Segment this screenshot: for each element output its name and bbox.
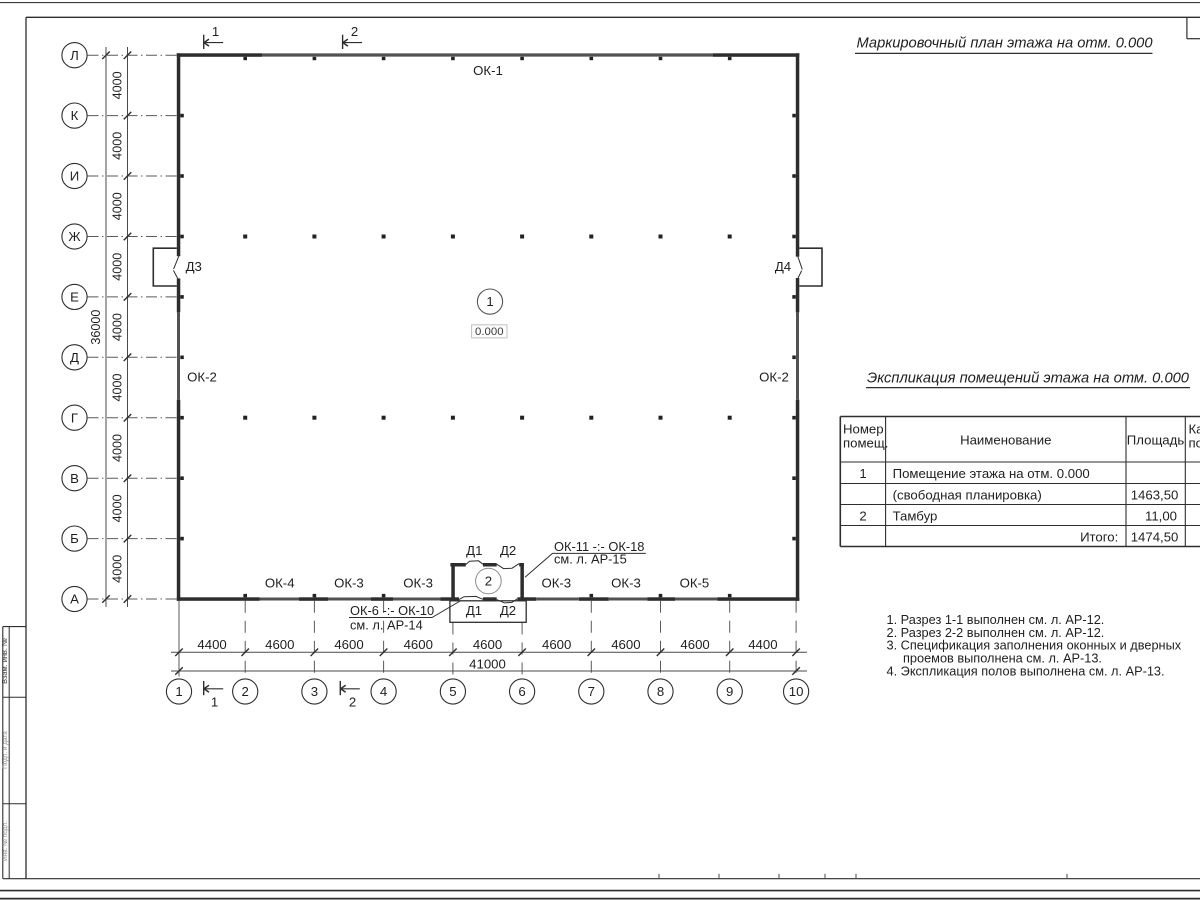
svg-text:4600: 4600 [611, 637, 640, 652]
svg-text:Ка: Ка [1189, 421, 1200, 436]
svg-text:Подп. и дата: Подп. и дата [2, 731, 9, 769]
svg-text:Номер: Номер [843, 421, 884, 436]
svg-text:Инв. № подл.: Инв. № подл. [2, 821, 9, 861]
svg-text:8: 8 [657, 684, 664, 699]
svg-text:Тамбур: Тамбур [893, 509, 938, 524]
svg-text:4600: 4600 [680, 637, 709, 652]
svg-text:Экспликация помещений этажа на: Экспликация помещений этажа на отм. 0.00… [867, 371, 1189, 387]
svg-text:2: 2 [242, 684, 249, 699]
svg-text:3: 3 [311, 684, 318, 699]
svg-text:4600: 4600 [542, 637, 571, 652]
svg-text:4: 4 [380, 684, 387, 699]
svg-text:ОК-3: ОК-3 [334, 576, 364, 591]
svg-text:41000: 41000 [469, 656, 506, 671]
svg-text:по: по [1189, 435, 1200, 450]
svg-text:Наименование: Наименование [960, 433, 1051, 448]
svg-text:7: 7 [588, 684, 595, 699]
svg-text:Д1: Д1 [466, 543, 482, 558]
svg-text:Д2: Д2 [500, 603, 516, 618]
svg-text:Д3: Д3 [186, 259, 202, 274]
svg-text:Г: Г [71, 410, 78, 425]
svg-text:Д: Д [70, 350, 79, 365]
svg-text:4600: 4600 [404, 637, 433, 652]
svg-text:1: 1 [212, 24, 219, 39]
svg-text:Е: Е [70, 290, 79, 305]
svg-text:4000: 4000 [110, 253, 124, 281]
svg-text:А: А [70, 592, 79, 607]
svg-text:4000: 4000 [110, 494, 124, 522]
svg-text:1463,50: 1463,50 [1131, 488, 1179, 503]
svg-text:ОК-5: ОК-5 [680, 576, 710, 591]
svg-text:4400: 4400 [748, 637, 777, 652]
svg-text:Д1: Д1 [466, 603, 482, 618]
svg-text:1: 1 [175, 684, 182, 699]
svg-text:И: И [70, 169, 79, 184]
svg-text:4000: 4000 [110, 555, 124, 583]
svg-text:ОК-6 -:- ОК-10: ОК-6 -:- ОК-10 [350, 603, 434, 618]
svg-text:Помещение этажа на отм. 0.000: Помещение этажа на отм. 0.000 [893, 466, 1090, 481]
svg-text:2: 2 [485, 574, 492, 589]
svg-text:см. л. АР-15: см. л. АР-15 [554, 552, 627, 567]
svg-text:1474,50: 1474,50 [1131, 530, 1179, 545]
svg-text:4600: 4600 [473, 637, 502, 652]
svg-text:4000: 4000 [110, 132, 124, 160]
svg-text:2: 2 [351, 24, 358, 39]
svg-text:4000: 4000 [110, 71, 124, 99]
svg-text:ОК-1: ОК-1 [473, 63, 503, 78]
svg-text:Площадь: Площадь [1127, 433, 1185, 448]
svg-text:Ж: Ж [68, 229, 80, 244]
svg-text:ОК-2: ОК-2 [759, 370, 789, 385]
svg-text:Маркировочный план этажа на от: Маркировочный план этажа на отм. 0.000 [857, 36, 1153, 52]
svg-text:В: В [70, 471, 79, 486]
svg-text:помещ.: помещ. [843, 435, 888, 450]
svg-text:36000: 36000 [89, 310, 103, 345]
svg-text:1: 1 [859, 466, 866, 481]
svg-text:4600: 4600 [265, 637, 294, 652]
svg-text:1: 1 [211, 695, 218, 710]
svg-text:ОК-3: ОК-3 [611, 576, 641, 591]
svg-text:Взам. инв. №: Взам. инв. № [0, 638, 9, 684]
svg-text:6: 6 [518, 684, 525, 699]
svg-text:11,00: 11,00 [1145, 509, 1177, 524]
svg-text:Итого:: Итого: [1080, 530, 1118, 545]
svg-text:ОК-2: ОК-2 [187, 370, 217, 385]
svg-text:ОК-3: ОК-3 [541, 576, 571, 591]
svg-text:см. л. АР-14: см. л. АР-14 [350, 617, 423, 632]
svg-text:4000: 4000 [110, 192, 124, 220]
svg-text:4600: 4600 [334, 637, 363, 652]
svg-text:К: К [71, 108, 79, 123]
svg-text:2: 2 [349, 695, 356, 710]
svg-text:5: 5 [449, 684, 456, 699]
svg-text:Б: Б [70, 531, 79, 546]
svg-text:Д2: Д2 [500, 543, 516, 558]
svg-text:4400: 4400 [197, 637, 226, 652]
svg-text:4000: 4000 [110, 434, 124, 462]
svg-text:4000: 4000 [110, 313, 124, 341]
svg-text:Л: Л [70, 48, 79, 63]
svg-text:1: 1 [486, 294, 493, 309]
svg-text:9: 9 [726, 684, 733, 699]
svg-text:(свободная планировка): (свободная планировка) [893, 488, 1042, 503]
svg-text:10: 10 [789, 684, 804, 699]
svg-text:4000: 4000 [110, 373, 124, 401]
svg-text:ОК-3: ОК-3 [403, 576, 433, 591]
svg-text:0.000: 0.000 [475, 326, 504, 338]
svg-text:ОК-4: ОК-4 [265, 576, 295, 591]
svg-text:4. Экспликация полов выполнена: 4. Экспликация полов выполнена см. л. АР… [887, 663, 1165, 678]
svg-text:2: 2 [859, 509, 866, 524]
svg-text:Д4: Д4 [775, 259, 791, 274]
